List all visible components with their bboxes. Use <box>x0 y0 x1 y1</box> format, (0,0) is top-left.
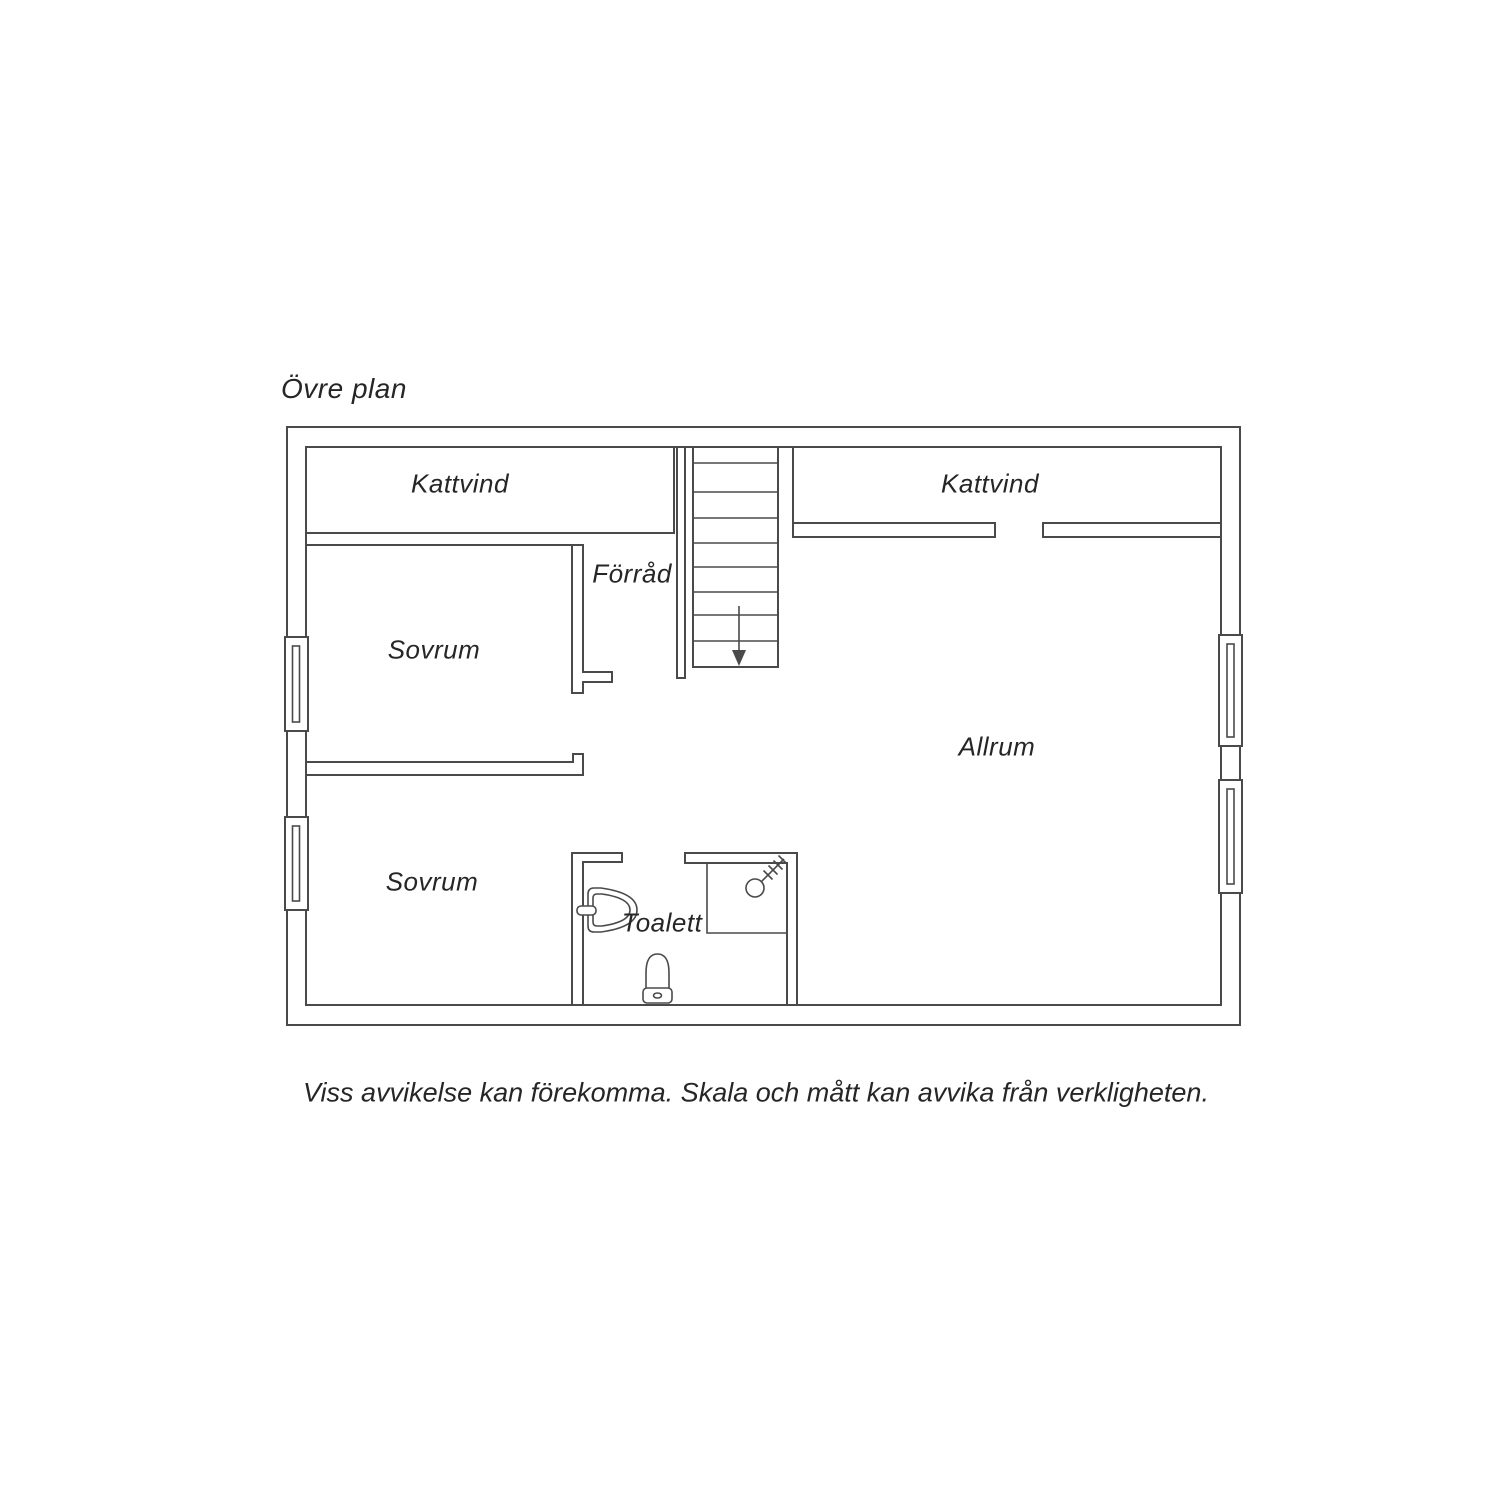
plan-title: Övre plan <box>281 373 407 405</box>
shower <box>707 856 788 934</box>
wall-kattvind-right-a <box>793 523 995 537</box>
wall-stair-left <box>677 447 685 678</box>
sink-tap-icon <box>577 906 596 915</box>
toilet-fixture <box>643 954 672 1003</box>
room-label-allrum: Allrum <box>959 732 1036 763</box>
room-label-forrad: Förråd <box>592 559 672 590</box>
wall-bedroom-partition <box>306 754 583 775</box>
wall-kattvind-right-b <box>1043 523 1221 537</box>
floor-plan-page: Övre plan Kattvind Förråd Sovrum Kattvin… <box>0 0 1500 1500</box>
window-left-upper <box>285 637 308 731</box>
disclaimer-text: Viss avvikelse kan förekomma. Skala och … <box>303 1078 1209 1109</box>
room-label-sovrum-upper: Sovrum <box>388 635 481 666</box>
room-label-sovrum-lower: Sovrum <box>386 867 479 898</box>
window-left-lower <box>285 817 308 910</box>
room-label-toalett: Toalett <box>622 908 703 939</box>
room-label-kattvind-right: Kattvind <box>941 469 1039 500</box>
window-right-upper <box>1219 635 1242 746</box>
staircase <box>693 447 778 667</box>
floor-plan-drawing <box>0 0 1500 1500</box>
window-right-lower <box>1219 780 1242 893</box>
room-label-kattvind-left: Kattvind <box>411 469 509 500</box>
